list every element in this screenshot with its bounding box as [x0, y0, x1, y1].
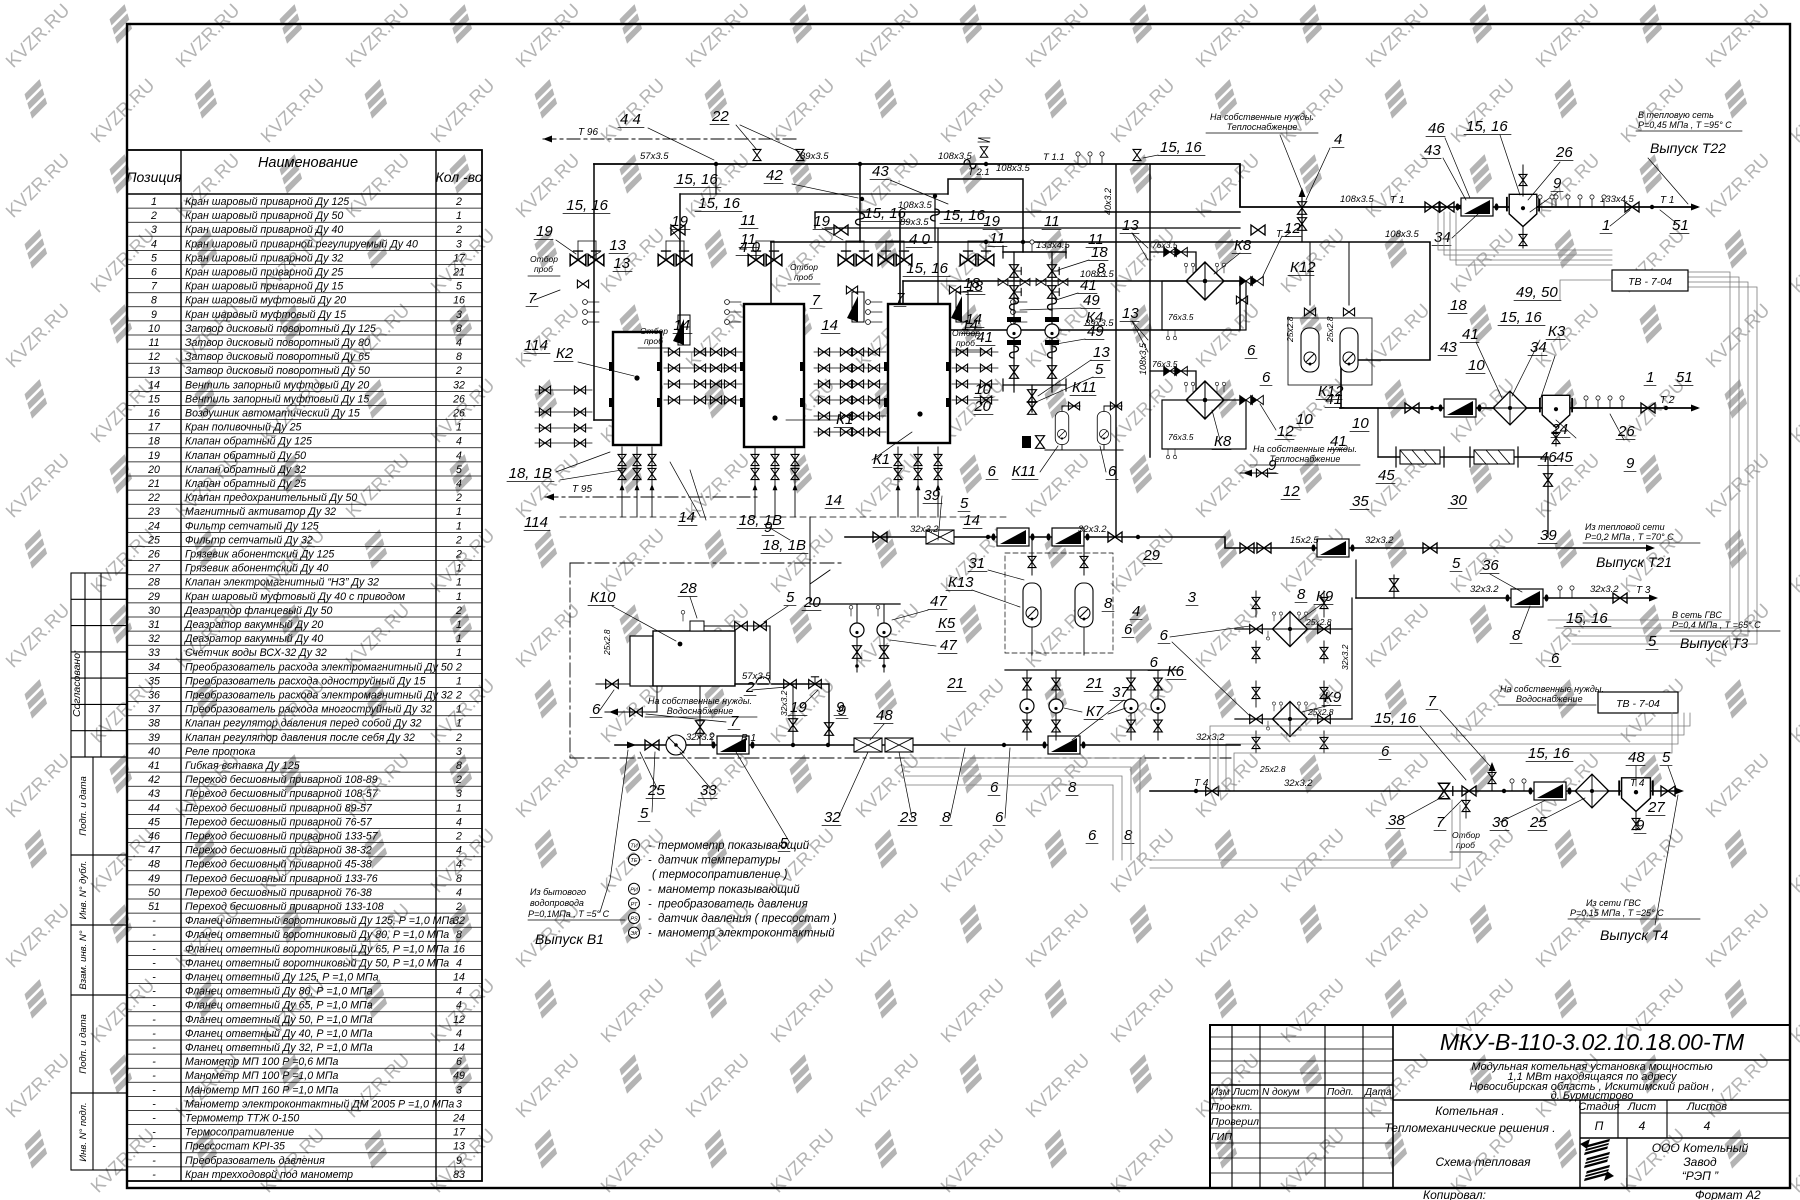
svg-text:4: 4: [1704, 1119, 1711, 1133]
svg-text:7: 7: [528, 290, 537, 307]
svg-text:51: 51: [1676, 369, 1693, 386]
svg-text:Преобразователь давления: Преобразователь давления: [185, 1155, 325, 1167]
svg-text:8: 8: [1104, 595, 1113, 612]
svg-text:25х2.8: 25х2.8: [1307, 707, 1334, 717]
svg-text:15, 16: 15, 16: [1374, 710, 1416, 727]
svg-text:-: -: [648, 913, 652, 925]
svg-text:45: 45: [1556, 449, 1573, 466]
svg-text:1: 1: [456, 506, 462, 518]
svg-text:Из сети ГВС: Из сети ГВС: [1586, 898, 1641, 908]
svg-text:32х3.2: 32х3.2: [1590, 584, 1619, 595]
svg-text:Выпуск Т22: Выпуск Т22: [1650, 140, 1726, 156]
svg-text:6: 6: [456, 1056, 462, 1068]
svg-text:25х2.8: 25х2.8: [1259, 764, 1286, 774]
svg-text:В тепловую сеть: В тепловую сеть: [1638, 110, 1714, 120]
svg-text:Кран шаровый приварной Ду 15: Кран шаровый приварной Ду 15: [185, 281, 343, 293]
svg-text:2: 2: [455, 732, 462, 744]
svg-text:76х3.5: 76х3.5: [1168, 312, 1194, 322]
svg-text:28: 28: [147, 577, 160, 589]
svg-text:-: -: [152, 1127, 156, 1139]
svg-text:14: 14: [453, 972, 465, 984]
svg-text:1: 1: [456, 591, 462, 603]
svg-text:6: 6: [995, 809, 1004, 826]
svg-text:1: 1: [151, 196, 157, 208]
svg-text:Т 4: Т 4: [1194, 778, 1209, 789]
svg-text:3: 3: [1188, 589, 1197, 606]
svg-text:Р=0,45 МПа , Т =95° С: Р=0,45 МПа , Т =95° С: [1638, 120, 1732, 130]
svg-text:48: 48: [876, 707, 893, 724]
svg-text:На собственные нужды.: На собственные нужды.: [1500, 684, 1604, 694]
svg-text:3: 3: [456, 309, 462, 321]
svg-text:Преобразователь расхода электр: Преобразователь расхода электромагнитный…: [185, 690, 453, 702]
svg-text:20: 20: [803, 594, 821, 611]
svg-text:Кран шаровый муфтовый Ду 40 с: Кран шаровый муфтовый Ду 40 с приводом: [185, 591, 406, 603]
svg-text:N докум: N докум: [1262, 1087, 1300, 1098]
svg-text:39: 39: [148, 732, 160, 744]
svg-text:1: 1: [456, 802, 462, 814]
svg-text:Кран шаровый приварной Ду 50: Кран шаровый приварной Ду 50: [185, 210, 343, 222]
svg-text:133х4.5: 133х4.5: [1036, 240, 1071, 251]
svg-text:Магнитный активатор Ду 32: Магнитный активатор Ду 32: [185, 506, 336, 518]
svg-text:Преобразователь расхода многос: Преобразователь расхода многоструйный Ду…: [185, 704, 432, 716]
svg-text:8: 8: [151, 295, 157, 307]
svg-text:-: -: [152, 929, 156, 941]
svg-text:2: 2: [455, 224, 462, 236]
svg-text:Переход бесшовный приварной 1: Переход бесшовный приварной 108-57: [185, 788, 379, 800]
svg-text:12: 12: [1283, 483, 1300, 500]
svg-text:-: -: [152, 1155, 156, 1167]
svg-text:33: 33: [148, 647, 160, 659]
svg-text:49, 50: 49, 50: [1516, 284, 1558, 301]
svg-text:11: 11: [149, 337, 160, 349]
svg-text:45: 45: [148, 816, 160, 828]
svg-text:РS: РS: [630, 917, 638, 923]
svg-text:-: -: [648, 840, 652, 852]
svg-text:24: 24: [452, 1113, 465, 1125]
svg-text:32х3.2: 32х3.2: [779, 690, 789, 716]
svg-text:Т 4: Т 4: [1630, 778, 1645, 789]
svg-text:27: 27: [147, 563, 161, 575]
svg-text:Завод: Завод: [1683, 1155, 1717, 1169]
svg-text:К1: К1: [836, 411, 853, 428]
svg-text:Фильтр сетчатый Ду 32: Фильтр сетчатый Ду 32: [185, 534, 313, 546]
svg-text:К8: К8: [1234, 237, 1252, 254]
svg-text:манометр электроконтактный: манометр электроконтактный: [658, 928, 835, 940]
svg-text:26: 26: [452, 408, 465, 420]
svg-text:-: -: [152, 1028, 156, 1040]
svg-text:50: 50: [148, 887, 160, 899]
svg-text:Вентиль запорный муфтовый Ду: Вентиль запорный муфтовый Ду 20: [185, 379, 369, 391]
svg-text:11: 11: [1088, 231, 1104, 248]
svg-text:Переход бесшовный приварной 4: Переход бесшовный приварной 45-38: [185, 859, 372, 871]
svg-text:МКУ-В-110-3.02.10.18.00-ТМ: МКУ-В-110-3.02.10.18.00-ТМ: [1440, 1029, 1745, 1055]
svg-text:13: 13: [1093, 344, 1110, 361]
svg-text:Манометр МП 100 Р =0,6 МПа: Манометр МП 100 Р =0,6 МПа: [185, 1056, 339, 1068]
svg-text:14: 14: [821, 317, 838, 334]
svg-text:46: 46: [1428, 120, 1445, 137]
svg-text:21: 21: [147, 478, 160, 490]
svg-text:Прессостат KPI-35: Прессостат KPI-35: [185, 1141, 285, 1153]
svg-text:Взам. инв. N°: Взам. инв. N°: [78, 930, 89, 989]
svg-text:-: -: [152, 1169, 156, 1181]
svg-text:40х3.2: 40х3.2: [1103, 188, 1113, 215]
svg-text:15, 16: 15, 16: [1566, 610, 1608, 627]
svg-text:29: 29: [147, 591, 160, 603]
svg-text:Кран шаровый приварной Ду 125: Кран шаровый приварной Ду 125: [185, 196, 349, 208]
svg-text:13: 13: [613, 255, 630, 272]
svg-text:23: 23: [899, 809, 917, 826]
svg-text:К5: К5: [938, 615, 956, 632]
svg-text:2: 2: [455, 774, 462, 786]
svg-text:проб: проб: [794, 272, 814, 282]
svg-text:-: -: [152, 1056, 156, 1068]
svg-text:49: 49: [1087, 323, 1104, 340]
svg-text:26: 26: [452, 393, 465, 405]
svg-text:Фланец ответный Ду 32, Р =1,0: Фланец ответный Ду 32, Р =1,0 МПа: [185, 1042, 373, 1054]
svg-text:4: 4: [1639, 1119, 1646, 1133]
svg-text:Проект.: Проект.: [1211, 1101, 1253, 1113]
svg-text:Вентиль запорный муфтовый Ду: Вентиль запорный муфтовый Ду 15: [185, 393, 369, 405]
svg-text:Теплоснабжение: Теплоснабжение: [1227, 122, 1298, 132]
svg-text:15, 16: 15, 16: [1466, 118, 1508, 135]
svg-text:Т 95: Т 95: [572, 484, 592, 495]
svg-text:ООО Котельный: ООО Котельный: [1652, 1141, 1749, 1155]
svg-text:Переход бесшовный приварной 1: Переход бесшовный приварной 133-76: [185, 873, 378, 885]
svg-text:Клапан обратный Ду 32: Клапан обратный Ду 32: [185, 464, 306, 476]
svg-text:1: 1: [456, 577, 462, 589]
svg-text:2: 2: [455, 605, 462, 617]
svg-text:18, 1В: 18, 1В: [739, 512, 782, 529]
svg-text:18, 1В: 18, 1В: [509, 465, 552, 482]
svg-text:42: 42: [148, 774, 160, 786]
svg-text:4: 4: [456, 986, 462, 998]
svg-text:Отбор: Отбор: [1452, 830, 1480, 840]
svg-text:3: 3: [456, 238, 462, 250]
svg-text:13: 13: [148, 365, 160, 377]
svg-text:РТ: РТ: [631, 902, 638, 908]
svg-text:Переход бесшовный приварной 7: Переход бесшовный приварной 76-38: [185, 887, 372, 899]
svg-text:31: 31: [968, 555, 985, 572]
svg-text:2: 2: [455, 690, 462, 702]
svg-text:108х3.5: 108х3.5: [996, 163, 1031, 174]
svg-text:-: -: [152, 1141, 156, 1153]
svg-text:В 1: В 1: [741, 733, 756, 744]
svg-text:Из тепловой сети: Из тепловой сети: [1585, 522, 1665, 532]
svg-text:Деаэратор вакумный Ду 40: Деаэратор вакумный Ду 40: [184, 633, 323, 645]
svg-text:14: 14: [148, 379, 160, 391]
svg-text:19: 19: [536, 223, 553, 240]
svg-text:15, 16: 15, 16: [698, 195, 740, 212]
svg-text:Счетчик воды ВСХ-32 Ду 32: Счетчик воды ВСХ-32 Ду 32: [185, 647, 327, 659]
svg-text:К8: К8: [1214, 433, 1232, 450]
svg-text:34: 34: [1530, 339, 1547, 356]
svg-text:36: 36: [1492, 814, 1509, 831]
svg-text:-: -: [648, 898, 652, 910]
svg-text:5: 5: [1662, 749, 1671, 766]
svg-text:Клапан электромагнитный “НЗ”: Клапан электромагнитный “НЗ” Ду 32: [185, 577, 379, 589]
svg-text:7: 7: [812, 292, 821, 309]
svg-text:6: 6: [1381, 743, 1390, 760]
svg-text:проб: проб: [534, 264, 554, 274]
svg-text:4: 4: [456, 859, 462, 871]
svg-text:10: 10: [148, 323, 160, 335]
svg-text:Переход бесшовный приварной 3: Переход бесшовный приварной 38-32: [185, 845, 372, 857]
svg-text:Грязевик абонентский Ду 40: Грязевик абонентский Ду 40: [185, 563, 329, 575]
svg-text:40: 40: [148, 746, 160, 758]
svg-text:2: 2: [455, 901, 462, 913]
svg-text:16: 16: [453, 943, 465, 955]
svg-text:6: 6: [592, 701, 601, 718]
svg-text:Реле протока: Реле протока: [185, 746, 256, 758]
svg-text:32: 32: [148, 633, 160, 645]
svg-text:ТЕ: ТЕ: [630, 858, 637, 864]
svg-text:13: 13: [453, 1141, 465, 1153]
svg-text:41: 41: [1325, 391, 1342, 408]
svg-text:12: 12: [1277, 423, 1294, 440]
svg-text:9: 9: [151, 309, 157, 321]
svg-text:26: 26: [1555, 144, 1573, 161]
svg-text:-: -: [152, 957, 156, 969]
svg-text:45: 45: [1378, 467, 1395, 484]
svg-text:33: 33: [700, 782, 717, 799]
svg-text:9: 9: [456, 1155, 462, 1167]
svg-text:22: 22: [147, 492, 160, 504]
svg-text:1: 1: [456, 647, 462, 659]
svg-text:Т 1: Т 1: [1390, 195, 1404, 206]
svg-text:-: -: [152, 1098, 156, 1110]
svg-text:8: 8: [456, 760, 462, 772]
svg-text:18: 18: [1450, 297, 1467, 314]
svg-text:48: 48: [148, 859, 160, 871]
svg-text:-: -: [152, 986, 156, 998]
svg-text:23: 23: [147, 506, 160, 518]
svg-text:2: 2: [455, 534, 462, 546]
svg-text:К3: К3: [1548, 323, 1566, 340]
svg-text:76х3.5: 76х3.5: [1152, 359, 1178, 369]
svg-text:1: 1: [456, 718, 462, 730]
svg-text:РИ: РИ: [630, 887, 638, 893]
svg-text:4 0: 4 0: [909, 231, 931, 248]
svg-text:Затвор дисковый поворотный Ду: Затвор дисковый поворотный Ду 50: [185, 365, 370, 377]
svg-text:4: 4: [456, 816, 462, 828]
svg-text:5: 5: [960, 495, 969, 512]
svg-text:проб: проб: [1456, 840, 1476, 850]
svg-text:19: 19: [148, 450, 160, 462]
svg-text:15х2.5: 15х2.5: [1290, 535, 1319, 546]
svg-text:83: 83: [453, 1169, 465, 1181]
svg-text:2: 2: [455, 661, 462, 673]
svg-text:Деаэратор фланцевый Ду 50: Деаэратор фланцевый Ду 50: [184, 605, 333, 617]
svg-text:Лист: Лист: [1232, 1087, 1259, 1098]
svg-text:18, 1В: 18, 1В: [763, 537, 806, 554]
svg-text:15, 16: 15, 16: [676, 171, 718, 188]
svg-text:4 4: 4 4: [620, 111, 641, 128]
svg-text:108х3.5: 108х3.5: [1138, 342, 1148, 375]
svg-text:4: 4: [456, 845, 462, 857]
svg-text:Фланец ответный Ду 125, Р =1,: Фланец ответный Ду 125, Р =1,0 МПа: [185, 972, 379, 984]
svg-text:25: 25: [647, 782, 665, 799]
svg-text:Р=0,1МПа , Т =5° С: Р=0,1МПа , Т =5° С: [528, 909, 610, 919]
svg-text:8: 8: [1124, 827, 1133, 844]
svg-text:Кран шаровый муфтовый Ду 20: Кран шаровый муфтовый Ду 20: [185, 295, 346, 307]
svg-text:6: 6: [151, 267, 157, 279]
svg-text:36: 36: [1482, 557, 1499, 574]
svg-text:Фланец ответный Ду 80, Р =1,0: Фланец ответный Ду 80, Р =1,0 МПа: [185, 986, 373, 998]
svg-text:Инв. N° дубл.: Инв. N° дубл.: [78, 861, 89, 920]
svg-text:1: 1: [456, 704, 462, 716]
svg-text:18: 18: [148, 436, 160, 448]
svg-text:датчик температуры: датчик температуры: [658, 855, 781, 867]
svg-text:17: 17: [148, 422, 161, 434]
svg-text:57х3.5: 57х3.5: [640, 151, 669, 162]
svg-text:6: 6: [1551, 650, 1560, 667]
svg-text:5: 5: [1452, 555, 1461, 572]
svg-text:Грязевик абонентский Ду 125: Грязевик абонентский Ду 125: [185, 549, 334, 561]
svg-text:датчик давления ( прессостат ): датчик давления ( прессостат ): [658, 913, 837, 925]
svg-text:6: 6: [1150, 654, 1159, 671]
svg-text:12: 12: [148, 351, 160, 363]
svg-text:11: 11: [1044, 213, 1060, 230]
svg-text:1: 1: [1646, 369, 1654, 386]
svg-text:21: 21: [1085, 675, 1103, 692]
svg-text:12: 12: [453, 1014, 465, 1026]
svg-text:Преобразователь расхода одност: Преобразователь расхода одноструйный Ду …: [185, 675, 426, 687]
svg-text:Фланец ответный Ду 50, Р =1,0: Фланец ответный Ду 50, Р =1,0 МПа: [185, 1014, 373, 1026]
svg-text:Р=0,2 МПа , Т =70° С: Р=0,2 МПа , Т =70° С: [1585, 532, 1674, 542]
svg-text:32: 32: [824, 809, 841, 826]
svg-text:114: 114: [524, 337, 548, 354]
svg-text:2: 2: [455, 365, 462, 377]
svg-text:43: 43: [872, 163, 889, 180]
svg-text:ГИП: ГИП: [1211, 1131, 1232, 1143]
svg-text:15, 16: 15, 16: [1160, 139, 1202, 156]
svg-text:21: 21: [452, 267, 465, 279]
svg-text:9: 9: [1626, 455, 1635, 472]
svg-text:Кран шаровый приварной Ду 40: Кран шаровый приварной Ду 40: [185, 224, 343, 236]
svg-text:49: 49: [1083, 292, 1100, 309]
svg-text:К12: К12: [1290, 259, 1316, 276]
svg-text:“РЭП ”: “РЭП ”: [1682, 1169, 1719, 1183]
svg-text:-: -: [152, 972, 156, 984]
svg-text:1: 1: [456, 633, 462, 645]
svg-text:манометр показывающий: манометр показывающий: [658, 884, 800, 896]
svg-text:47: 47: [930, 593, 947, 610]
svg-text:5: 5: [1648, 633, 1657, 650]
svg-text:20: 20: [147, 464, 160, 476]
svg-text:8: 8: [456, 323, 462, 335]
svg-text:-: -: [152, 943, 156, 955]
svg-text:Листов: Листов: [1686, 1101, 1727, 1113]
svg-text:На собственные нужды.: На собственные нужды.: [648, 696, 752, 706]
svg-text:Клапан обратный Ду 25: Клапан обратный Ду 25: [185, 478, 306, 490]
svg-text:Инв. N° подл.: Инв. N° подл.: [78, 1102, 89, 1161]
svg-text:4: 4: [456, 436, 462, 448]
svg-text:4: 4: [456, 1000, 462, 1012]
svg-text:4: 4: [456, 1028, 462, 1040]
svg-text:37: 37: [148, 704, 161, 716]
svg-text:42: 42: [766, 167, 783, 184]
svg-text:19: 19: [790, 699, 807, 716]
svg-text:Клапан обратный Ду 125: Клапан обратный Ду 125: [185, 436, 312, 448]
svg-text:18: 18: [963, 275, 980, 292]
svg-text:7: 7: [1436, 814, 1445, 831]
svg-text:27: 27: [1647, 799, 1665, 816]
svg-text:Переход бесшовный приварной 7: Переход бесшовный приварной 76-57: [185, 816, 373, 828]
svg-text:Термосопративление: Термосопративление: [185, 1127, 294, 1139]
svg-text:19: 19: [983, 213, 1000, 230]
svg-text:76х3.5: 76х3.5: [1152, 240, 1178, 250]
svg-text:30: 30: [1450, 492, 1467, 509]
svg-text:32х3.2: 32х3.2: [910, 524, 939, 535]
svg-text:Манометр электроконтактный ДМ: Манометр электроконтактный ДМ 2005 Р =1,…: [185, 1098, 454, 1110]
svg-text:49: 49: [148, 873, 160, 885]
svg-text:1: 1: [456, 675, 462, 687]
svg-text:10: 10: [1352, 415, 1369, 432]
svg-text:30: 30: [148, 605, 160, 617]
svg-text:8: 8: [942, 809, 951, 826]
svg-text:32: 32: [453, 379, 465, 391]
svg-text:38: 38: [148, 718, 160, 730]
svg-text:32х3.2: 32х3.2: [1340, 644, 1350, 670]
svg-text:2: 2: [745, 679, 755, 696]
svg-text:8: 8: [456, 929, 462, 941]
svg-text:48: 48: [1628, 749, 1645, 766]
svg-text:44: 44: [148, 802, 160, 814]
svg-text:8: 8: [456, 351, 462, 363]
svg-text:20: 20: [973, 398, 991, 415]
svg-text:3: 3: [456, 1084, 462, 1096]
svg-text:Формат А2: Формат А2: [1695, 1188, 1761, 1200]
svg-text:2: 2: [455, 549, 462, 561]
svg-text:Отбор: Отбор: [640, 326, 668, 336]
svg-text:Затвор дисковый поворотный Ду: Затвор дисковый поворотный Ду 65: [185, 351, 370, 363]
svg-text:8: 8: [1097, 260, 1106, 277]
svg-text:4 0: 4 0: [739, 239, 761, 256]
svg-text:49: 49: [453, 1070, 465, 1082]
svg-text:5: 5: [1095, 361, 1104, 378]
svg-text:46: 46: [148, 831, 160, 843]
svg-text:14: 14: [678, 509, 695, 526]
svg-text:Выпуск Т3: Выпуск Т3: [1680, 635, 1748, 651]
svg-text:25: 25: [1529, 814, 1547, 831]
svg-text:Термометр ТТЖ 0-150: Термометр ТТЖ 0-150: [185, 1113, 299, 1125]
svg-text:-: -: [648, 884, 652, 896]
svg-text:5: 5: [151, 252, 157, 264]
svg-text:-: -: [152, 1070, 156, 1082]
svg-text:Наименование: Наименование: [258, 155, 358, 171]
svg-text:Т 96: Т 96: [578, 127, 598, 138]
svg-text:2: 2: [455, 492, 462, 504]
svg-text:14: 14: [453, 1042, 465, 1054]
svg-text:6: 6: [1247, 342, 1256, 359]
svg-text:4: 4: [456, 887, 462, 899]
svg-text:Т 2.1: Т 2.1: [968, 167, 990, 178]
svg-text:К13: К13: [948, 574, 974, 591]
svg-text:35: 35: [148, 675, 160, 687]
svg-text:7: 7: [896, 290, 905, 307]
svg-text:Фланец ответный воротниковый Д: Фланец ответный воротниковый Ду 65, Р =1…: [185, 943, 449, 955]
svg-text:Воздушник автоматический Ду 15: Воздушник автоматический Ду 15: [185, 408, 360, 420]
svg-text:25х2.8: 25х2.8: [602, 629, 612, 656]
svg-text:проб: проб: [956, 338, 976, 348]
svg-text:4: 4: [1132, 603, 1140, 620]
svg-text:ТВ - 7-04: ТВ - 7-04: [1628, 276, 1672, 288]
svg-text:Согласовано:: Согласовано:: [71, 650, 83, 717]
svg-text:4: 4: [456, 450, 462, 462]
svg-text:1: 1: [456, 210, 462, 222]
svg-text:14: 14: [963, 512, 980, 529]
svg-text:6: 6: [1160, 627, 1169, 644]
